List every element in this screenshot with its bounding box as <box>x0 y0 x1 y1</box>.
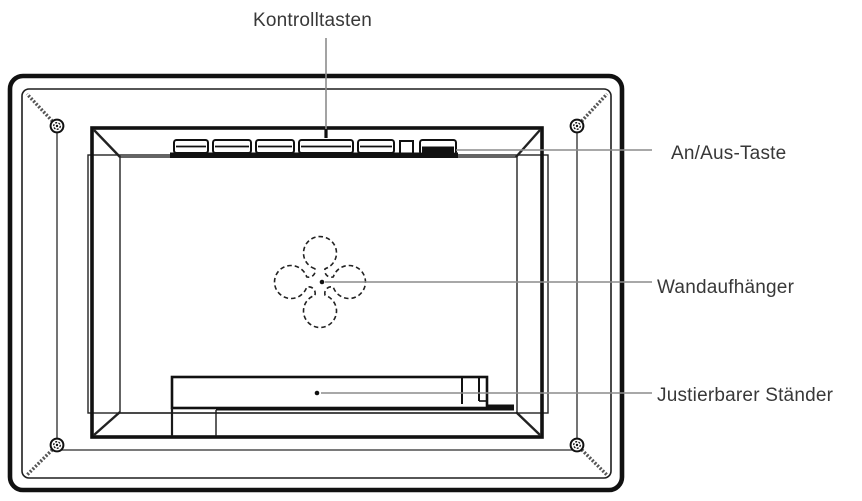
photo-frame-back-view-drawing <box>0 0 862 501</box>
manual-diagram-page: Kontrolltasten An/Aus-Taste Wandaufhänge… <box>0 0 862 501</box>
screw-top-right-icon <box>571 120 584 133</box>
leader-dot-wall-hanger <box>320 280 325 285</box>
label-control-buttons: Kontrolltasten <box>253 10 372 32</box>
screw-bottom-right-icon <box>571 439 584 452</box>
adjustable-stand <box>172 377 514 436</box>
power-button-dark-face <box>422 147 454 154</box>
label-power-button: An/Aus-Taste <box>671 143 786 165</box>
label-wall-hanger: Wandaufhänger <box>657 277 794 299</box>
screw-bottom-left-icon <box>51 439 64 452</box>
reset-hole-button <box>400 141 413 154</box>
screw-top-left-icon <box>51 120 64 133</box>
control-buttons-row <box>170 140 458 158</box>
leader-dot-stand <box>315 391 320 396</box>
label-adjustable-stand: Justierbarer Ständer <box>657 385 833 407</box>
